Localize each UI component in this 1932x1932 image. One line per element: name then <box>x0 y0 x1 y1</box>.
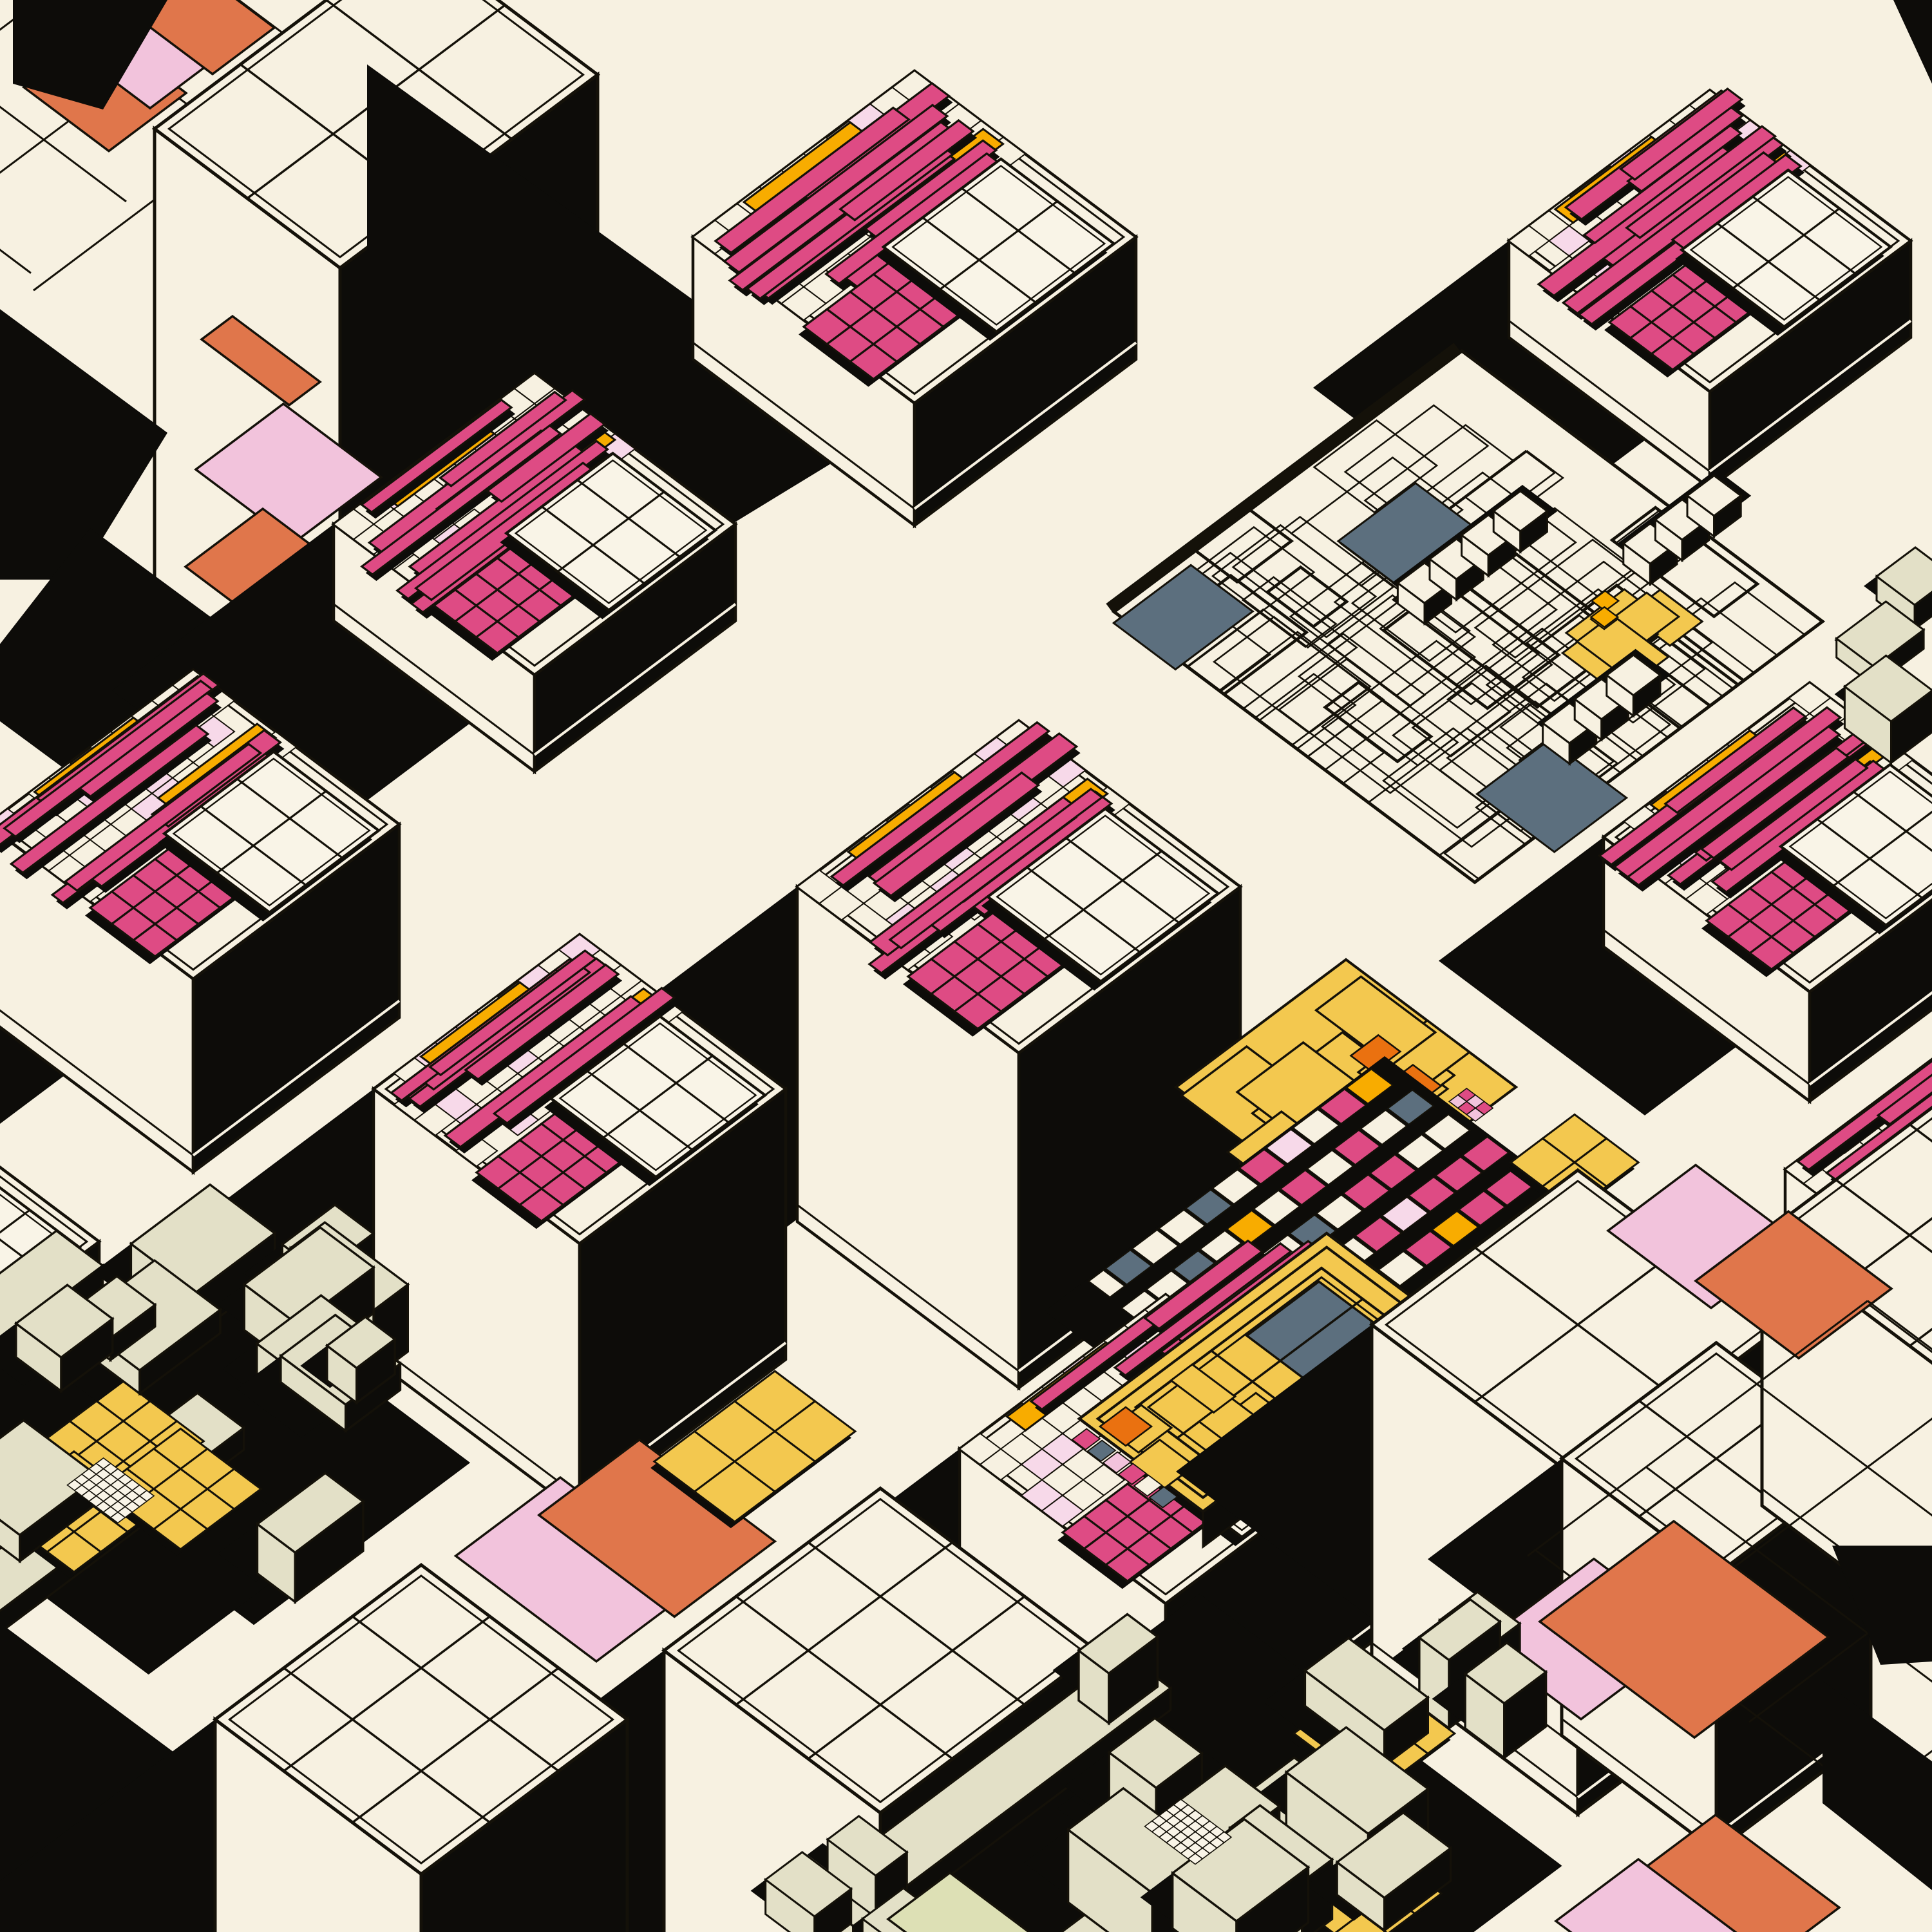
generative-isometric-artwork <box>0 0 1932 1932</box>
artwork-canvas <box>0 0 1932 1932</box>
